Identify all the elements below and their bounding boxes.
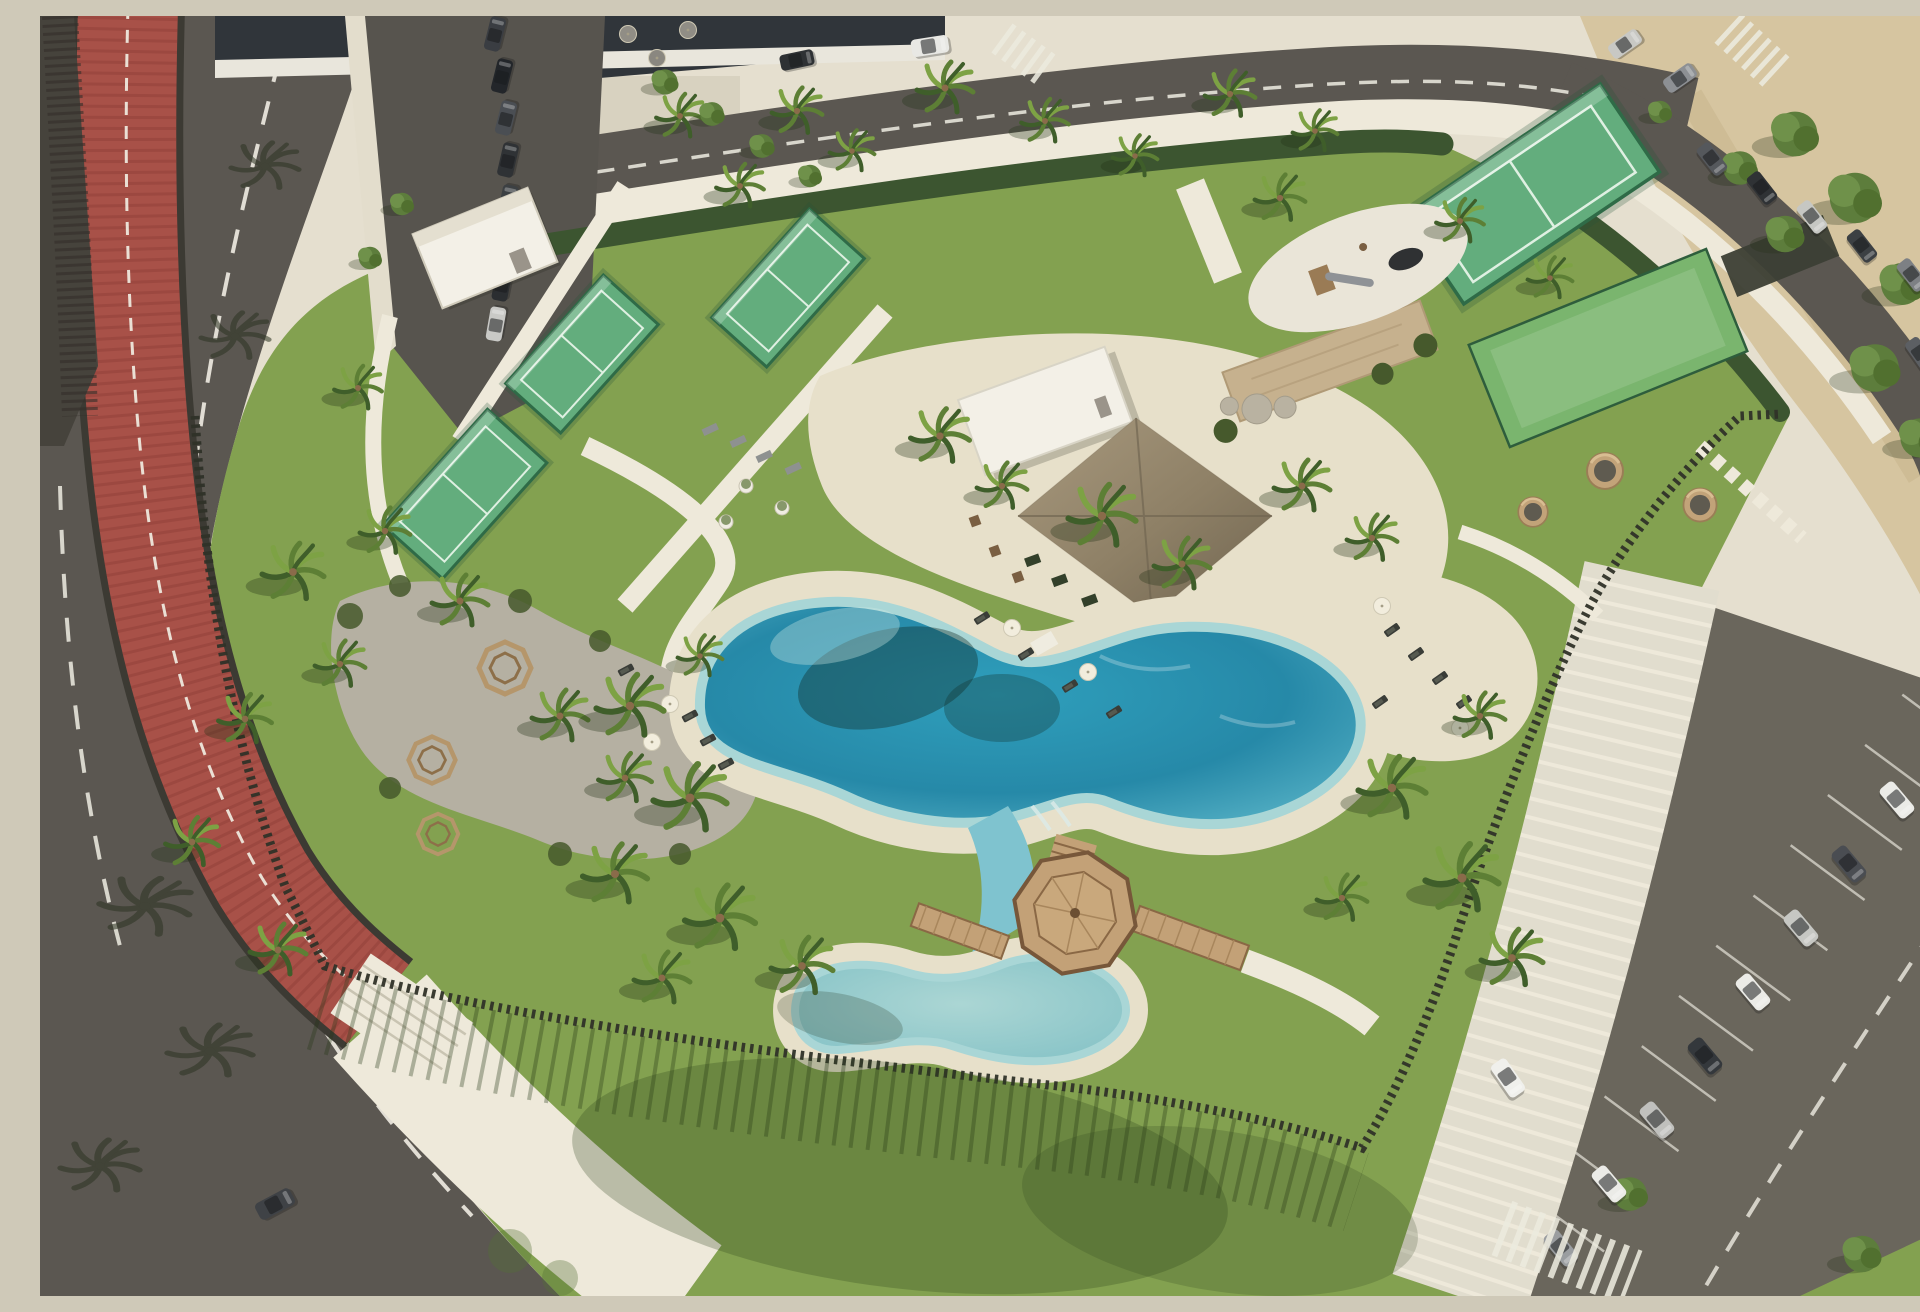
wicker-pod	[1518, 497, 1548, 527]
parasol	[1374, 598, 1391, 615]
planter-pot	[739, 479, 753, 493]
main-pool	[700, 597, 1361, 830]
parasol	[1004, 620, 1021, 637]
planter-pot	[719, 515, 733, 529]
planter-pot	[775, 501, 789, 515]
terrace-umbrella	[649, 50, 666, 67]
parasol	[1080, 664, 1097, 681]
wicker-pod	[1683, 488, 1716, 521]
scene-canvas: Aerial drone view of a resort amenity pa…	[40, 16, 1920, 1296]
aerial-photo: Aerial drone view of a resort amenity pa…	[40, 16, 1920, 1296]
wicker-pod	[1587, 453, 1623, 489]
terrace-umbrella	[680, 22, 697, 39]
terrace-umbrella	[620, 26, 637, 43]
